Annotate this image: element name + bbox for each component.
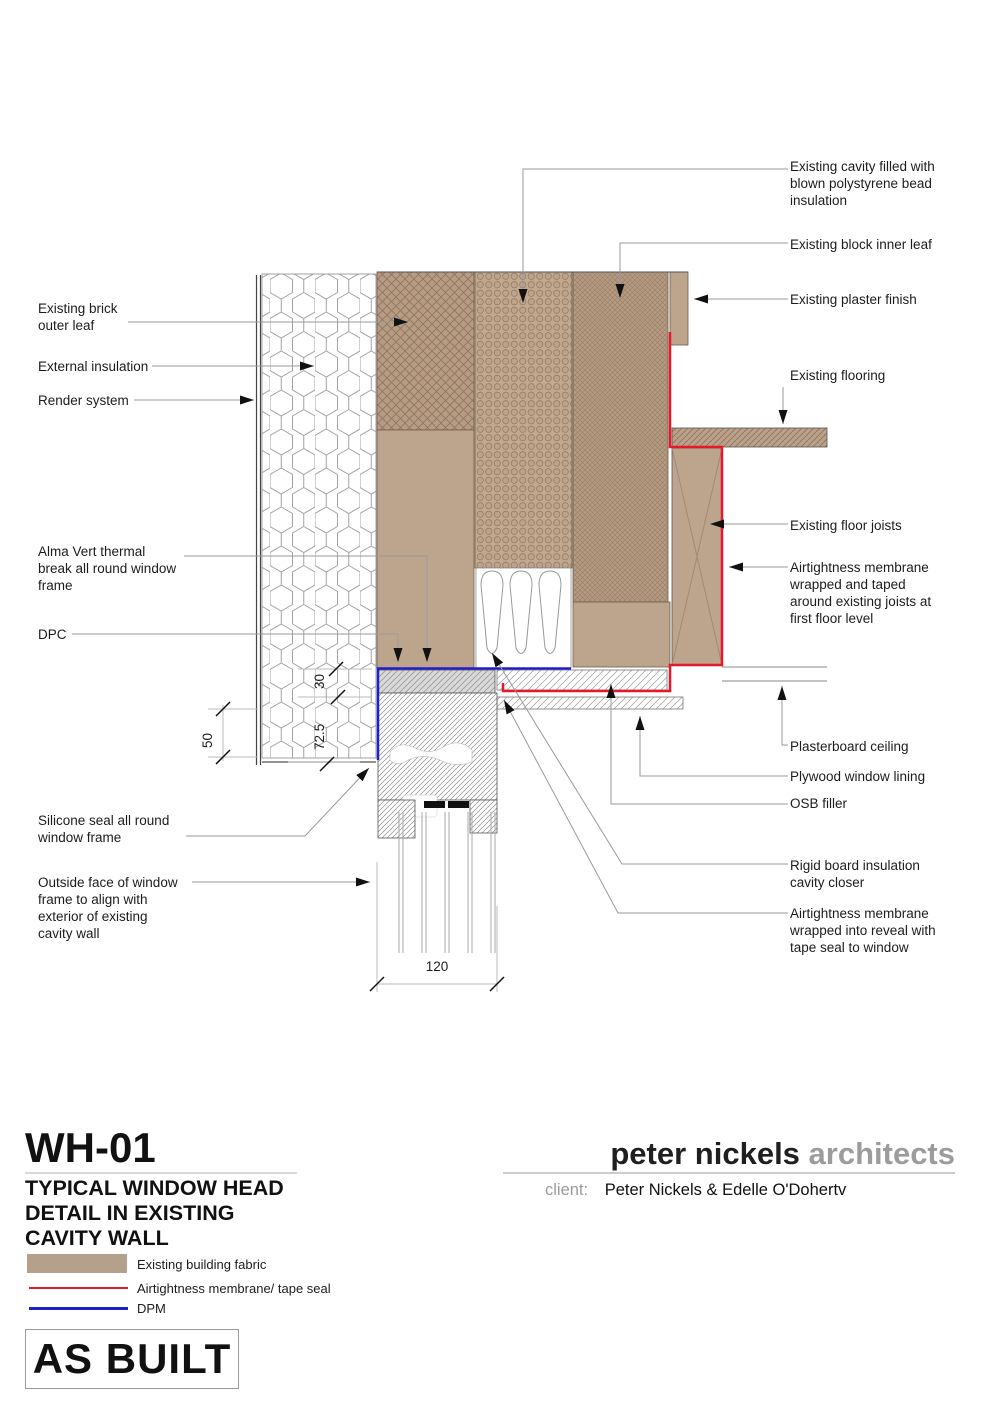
dim-72-5: 72.5 [312, 724, 327, 750]
cavity-bead-insulation [475, 272, 572, 568]
legend-label-dpm: DPM [137, 1301, 166, 1316]
label-plaster-finish: Existing plaster finish [790, 291, 960, 308]
inner-leaf-below-block [573, 602, 670, 667]
label-airtightness-reveal: Airtightness membrane wrapped into revea… [790, 905, 960, 956]
status-stamp-box: AS BUILT [25, 1329, 239, 1389]
leader-silicone [186, 768, 369, 836]
label-plywood-lining: Plywood window lining [790, 768, 960, 785]
drawing-code: WH-01 [25, 1124, 156, 1172]
label-rigid-board: Rigid board insulation cavity closer [790, 857, 960, 891]
dim-50: 50 [200, 733, 215, 748]
window-head-zone [378, 670, 683, 953]
dim-120: 120 [426, 959, 449, 974]
status-stamp: AS BUILT [33, 1335, 232, 1383]
glazing-spacer-right [448, 801, 469, 808]
legend-line-airtightness [29, 1287, 128, 1289]
leader-plywood [640, 716, 788, 776]
label-outside-face: Outside face of window frame to align wi… [38, 874, 208, 942]
label-alma-vert: Alma Vert thermal break all round window… [38, 543, 208, 594]
firm-logotype: peter nickels architects [500, 1136, 955, 1172]
label-brick-outer-leaf: Existing brick outer leaf [38, 300, 208, 334]
label-airtightness-joists: Airtightness membrane wrapped and taped … [790, 559, 960, 627]
osb-filler-strip [497, 670, 667, 690]
label-floor-joists: Existing floor joists [790, 517, 960, 534]
client-name: Peter Nickels & Edelle O'Dohertv [605, 1181, 847, 1199]
drawing-sheet: { "drawing": { "code": "WH-01", "title":… [0, 0, 1000, 1427]
label-osb-filler: OSB filler [790, 795, 960, 812]
drawing-title: TYPICAL WINDOW HEAD DETAIL IN EXISTING C… [25, 1176, 284, 1251]
firm-name: peter nickels [610, 1136, 808, 1171]
client-label: client: [545, 1181, 588, 1199]
cavity-closer-loops [481, 571, 561, 654]
label-silicone-seal: Silicone seal all round window frame [38, 812, 208, 846]
brick-outer-leaf-lower [377, 430, 474, 668]
glazing-spacer-left [424, 801, 445, 808]
legend-line-dpm [29, 1307, 128, 1310]
firm-suffix: architects [809, 1136, 955, 1171]
window-frame-head [378, 693, 497, 800]
label-dpc: DPC [38, 626, 208, 643]
brick-outer-leaf-upper [377, 272, 474, 430]
legend-label-airtightness: Airtightness membrane/ tape seal [137, 1281, 331, 1296]
block-inner-leaf [573, 272, 668, 602]
label-cavity-insulation: Existing cavity filled with blown polyst… [790, 158, 960, 209]
label-render-system: Render system [38, 392, 208, 409]
existing-flooring-strip [672, 428, 827, 447]
client-row: client: Peter Nickels & Edelle O'Dohertv [545, 1181, 846, 1200]
legend-label-existing-fabric: Existing building fabric [137, 1257, 266, 1272]
legend-swatch-existing-fabric [27, 1254, 127, 1273]
label-block-inner-leaf: Existing block inner leaf [790, 236, 960, 253]
floor-zone [672, 428, 827, 681]
thermal-break-lintel [378, 670, 495, 693]
dim-30: 30 [312, 674, 327, 689]
plaster-finish-strip [670, 272, 688, 345]
frame-leg-left [378, 800, 415, 838]
label-plasterboard-ceiling: Plasterboard ceiling [790, 738, 960, 755]
label-external-insulation: External insulation [38, 358, 208, 375]
title-divider [25, 1172, 297, 1174]
leader-plasterboard [782, 686, 788, 745]
leader-airtightness-reveal [504, 700, 788, 913]
frame-leg-right [470, 800, 497, 833]
label-existing-flooring: Existing flooring [790, 367, 960, 384]
brand-divider [503, 1172, 955, 1174]
